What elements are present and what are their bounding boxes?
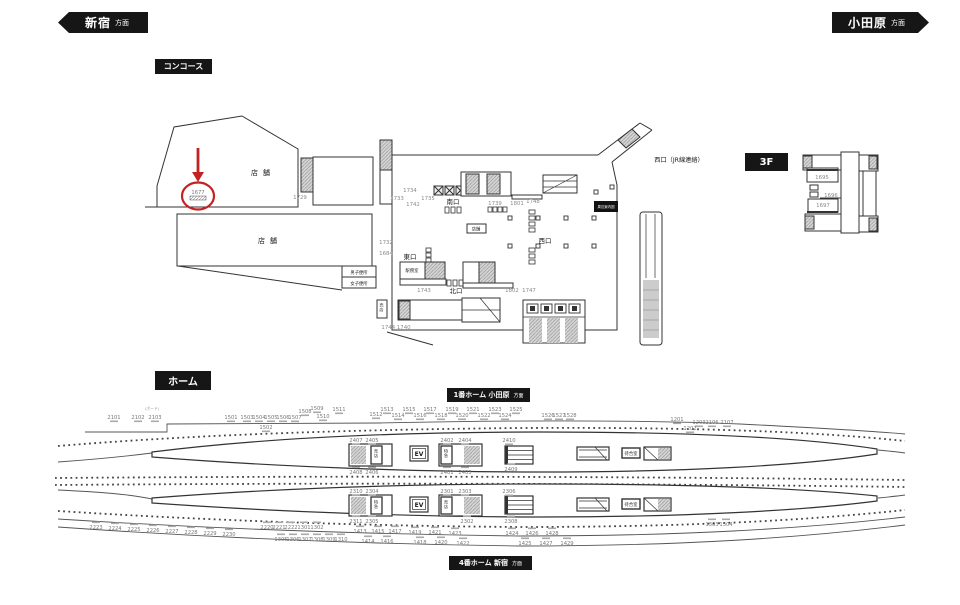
stair-flight	[547, 318, 560, 343]
p1-stair-flight	[351, 446, 366, 464]
position-tick	[708, 519, 716, 521]
p1-ramp-flight	[658, 448, 670, 459]
position-number: 1417	[388, 529, 401, 535]
position-tick	[374, 526, 382, 528]
position-number: 1415	[371, 529, 384, 535]
office-side-stairs	[425, 262, 445, 279]
east-exit-label: 東口	[404, 252, 417, 261]
p4-ltdexp-label: 特急	[374, 499, 379, 509]
south-exit-label: 南口	[447, 197, 460, 206]
position-tick	[528, 528, 536, 530]
position-tick	[277, 534, 285, 536]
ad-board	[190, 196, 206, 200]
position-tick	[325, 534, 333, 536]
position-number: 1733	[390, 196, 404, 202]
p1-stair-flight	[464, 446, 480, 464]
stair-flight	[529, 318, 542, 343]
center-gate-ticks	[488, 207, 507, 212]
station-layout-page: 新宿 方面 小田原 方面 コンコース ホーム 3F 1番ホーム 小田原 方面 4…	[0, 0, 960, 605]
position-tick	[356, 526, 364, 528]
position-number: 1201	[670, 417, 683, 423]
position-number: 1501	[224, 415, 237, 421]
position-number: 2103	[148, 415, 161, 421]
central-stairs-flight	[487, 174, 500, 194]
p4-kiosk-label: 売店	[444, 499, 449, 510]
position-number: 2404	[458, 438, 472, 444]
north-exit-label: 北口	[450, 287, 463, 295]
position-tick	[206, 528, 214, 530]
p1-ev-label: EV	[415, 451, 424, 458]
station-office-label: 駅務室	[406, 267, 420, 274]
position-number: 2229	[203, 531, 216, 537]
p4-ev-label: EV	[415, 502, 424, 509]
position-tick	[437, 537, 445, 539]
position-number: 2406	[365, 470, 378, 476]
position-number: 1509	[310, 406, 323, 412]
east-passage-stairs	[380, 140, 392, 170]
p4-waiting-room-label: 待合室	[625, 501, 639, 508]
position-number: 1522	[477, 413, 490, 419]
position-number: 1729	[293, 195, 307, 201]
position-tick	[391, 526, 399, 528]
position-tick	[263, 522, 271, 524]
position-tick	[451, 528, 459, 530]
station-map-drawing: 1677 店舗 店舗 南口 東口 北口 西口 西口（JR線連絡） 駅務室 男子便…	[0, 0, 960, 605]
position-tick	[548, 528, 556, 530]
position-number: 1421	[428, 530, 441, 536]
platform1-upper-position-numbers: 2101210221031501150315041505150615071502…	[107, 406, 733, 433]
position-number: 1511	[332, 407, 345, 413]
position-tick	[461, 467, 469, 469]
escalator-column	[399, 301, 410, 319]
west-exit-label: 西口	[539, 237, 552, 245]
position-number: 1304	[719, 522, 733, 528]
ticket-machine-boxes	[434, 186, 465, 195]
position-tick	[507, 464, 515, 466]
position-number: 2228	[184, 530, 197, 536]
position-tick	[275, 522, 283, 524]
position-tick	[313, 522, 321, 524]
position-number: 1429	[560, 541, 573, 547]
p1-ltdexp-label: 特急	[444, 448, 449, 458]
shop-box-label: 店舗	[472, 226, 481, 233]
f3-stairs	[805, 216, 814, 229]
position-tick	[149, 525, 157, 527]
position-number: 1801	[510, 201, 524, 207]
position-tick	[521, 538, 529, 540]
position-tick	[168, 526, 176, 528]
west-gate-ticks	[529, 210, 535, 264]
position-tick	[563, 538, 571, 540]
position-tick	[507, 516, 515, 518]
position-number: 2227	[165, 529, 178, 535]
position-tick	[313, 534, 321, 536]
position-tick	[411, 527, 419, 529]
position-number: 2311	[349, 519, 362, 525]
position-number: 2102	[131, 415, 144, 421]
corridor-stairs	[618, 129, 640, 148]
position-tick	[289, 534, 297, 536]
position-number: 2308	[504, 519, 517, 525]
shop-lower-label: 店舗	[258, 236, 282, 245]
board-note-label: (ボード)	[145, 406, 160, 411]
position-tick	[287, 522, 295, 524]
north-stairs	[463, 262, 479, 283]
position-number: 1695	[815, 175, 829, 181]
p1-waiting-room-label: 待合室	[625, 450, 639, 457]
position-number: 2303	[458, 489, 471, 495]
position-number: 1301	[297, 525, 310, 531]
position-number: 1735	[421, 196, 435, 202]
position-number: 2402	[440, 438, 453, 444]
position-number: 2224	[108, 526, 122, 532]
position-number: 2222	[284, 525, 297, 531]
position-number: 1424	[505, 531, 519, 537]
f3-small-box	[810, 185, 818, 190]
position-number: 1425	[518, 541, 531, 547]
position-number: 1518	[434, 413, 447, 419]
position-tick	[463, 516, 471, 518]
position-tick	[722, 519, 730, 521]
position-number: 1516	[413, 413, 426, 419]
position-number: 2230	[222, 532, 235, 538]
position-number: 1310	[334, 537, 347, 543]
p1-ladder-cap	[505, 446, 508, 464]
position-number: 1420	[434, 540, 447, 546]
position-number: 1423	[448, 531, 461, 537]
position-number: 2107	[720, 420, 733, 426]
north-stairs-flight	[479, 262, 495, 283]
platform4-lower-position-numbers: 2223222422252226222722282229223022202221…	[89, 519, 733, 548]
position-number: 1684	[379, 251, 393, 257]
p1-kiosk-label: 売店	[374, 448, 379, 459]
p4-stair-flight	[351, 497, 366, 514]
position-number: 1202	[683, 426, 696, 432]
office-base	[400, 279, 446, 285]
position-number: 1303	[705, 522, 718, 528]
position-number: 1739	[488, 201, 502, 207]
position-number: 2106	[705, 420, 718, 426]
position-number: 1696	[824, 193, 838, 199]
north-gate-ticks	[447, 280, 463, 286]
hall-pillars	[508, 185, 614, 248]
position-tick	[92, 522, 100, 524]
position-tick	[431, 527, 439, 529]
boundary-diagonal	[178, 266, 342, 290]
position-number: 2302	[460, 519, 473, 525]
position-number: 2305	[365, 519, 378, 525]
position-number: 1742	[406, 202, 420, 208]
womens-toilet-label: 女子便所	[350, 280, 368, 287]
position-number: 1414	[361, 539, 375, 545]
highlight-position-number: 1677	[191, 190, 204, 196]
position-tick	[352, 516, 360, 518]
position-number: 2407	[349, 438, 362, 444]
position-number: 1426	[525, 531, 538, 537]
position-number: 1418	[413, 540, 426, 546]
south-gate-ticks	[445, 207, 461, 213]
position-number: 1747	[522, 288, 536, 294]
position-number: 1422	[456, 541, 469, 547]
position-tick	[225, 529, 233, 531]
position-number: 1748	[526, 199, 540, 205]
central-stairs-flight	[466, 174, 479, 194]
shop-upper-label: 店舗	[251, 168, 275, 177]
position-number: 2409	[504, 467, 517, 473]
position-number: 2101	[107, 415, 120, 421]
position-tick	[187, 527, 195, 529]
stair-flight	[565, 318, 578, 343]
position-number: 1524	[498, 413, 512, 419]
position-tick	[301, 534, 309, 536]
position-number: 2301	[440, 489, 453, 495]
position-tick	[368, 516, 376, 518]
position-tick	[459, 538, 467, 540]
position-number: 1416	[380, 539, 393, 545]
f3-stairs	[869, 218, 877, 231]
escalator-strip	[301, 158, 313, 192]
position-number: 1428	[545, 531, 558, 537]
east-gate-ticks	[426, 248, 431, 262]
position-number: 2405	[365, 438, 378, 444]
area-map-label: 周辺案内図	[598, 204, 616, 209]
concourse-map	[145, 116, 662, 345]
position-tick	[542, 538, 550, 540]
position-number: 1502	[259, 425, 272, 431]
position-number: 2223	[89, 525, 102, 531]
position-number: 1520	[455, 413, 468, 419]
position-tick	[300, 522, 308, 524]
position-number: 2401	[440, 470, 453, 476]
position-tick	[111, 523, 119, 525]
f3-right-connector	[863, 171, 876, 216]
position-number: 1507	[288, 415, 301, 421]
position-number: 1744 1740	[381, 325, 411, 331]
position-number: 2306	[502, 489, 515, 495]
position-number: 1413	[353, 529, 366, 535]
position-tick	[364, 536, 372, 538]
position-number: 1514	[391, 413, 405, 419]
position-number: 1528	[563, 413, 576, 419]
f3-small-box	[810, 192, 818, 197]
position-number: 2403	[458, 470, 471, 476]
shop-upper-outline	[157, 116, 298, 207]
position-number: 2310	[349, 489, 362, 495]
position-tick	[337, 534, 345, 536]
mens-toilet-label: 男子便所	[350, 269, 368, 276]
position-number: 1419	[408, 530, 421, 536]
p4-ladder-cap	[505, 496, 508, 514]
f3-central-bar	[841, 152, 859, 233]
position-number: 1734	[403, 188, 417, 194]
position-number: 2410	[502, 438, 515, 444]
position-number: 1802	[505, 288, 519, 294]
position-number: 1697	[816, 203, 830, 209]
p4-stair-flight	[464, 497, 480, 514]
floor3-plan	[803, 152, 878, 233]
west-jr-label: 西口（JR線連絡）	[654, 156, 703, 164]
position-tick	[443, 467, 451, 469]
position-number: 1427	[539, 541, 552, 547]
p4-ramp-flight	[658, 499, 670, 510]
kiosk-label: 売店	[380, 302, 385, 313]
p4-escalator	[577, 498, 609, 511]
position-number: 1732	[379, 240, 393, 246]
f3-stairs	[869, 156, 877, 169]
corridor-escalator	[643, 280, 659, 338]
position-number: 2304	[365, 489, 379, 495]
position-number: 1743	[417, 288, 431, 294]
platform-diagram: EV EV 売店 特急 特急 売店 待合室 待合室 (ボード) 21012102…	[55, 406, 905, 547]
upper-block	[313, 157, 373, 205]
position-tick	[383, 536, 391, 538]
position-number: 2408	[349, 470, 362, 476]
position-number: 1302	[310, 525, 323, 531]
position-number: 1525	[509, 407, 522, 413]
f3-stairs	[803, 156, 812, 168]
position-number: 2225	[127, 527, 140, 533]
position-number: 2226	[146, 528, 159, 534]
boundary-diagonal	[387, 332, 433, 345]
position-tick	[130, 524, 138, 526]
position-tick	[352, 467, 360, 469]
position-tick	[508, 528, 516, 530]
position-tick	[416, 537, 424, 539]
p1-escalator	[577, 447, 609, 460]
position-tick	[368, 467, 376, 469]
position-number: 1510	[316, 414, 329, 420]
